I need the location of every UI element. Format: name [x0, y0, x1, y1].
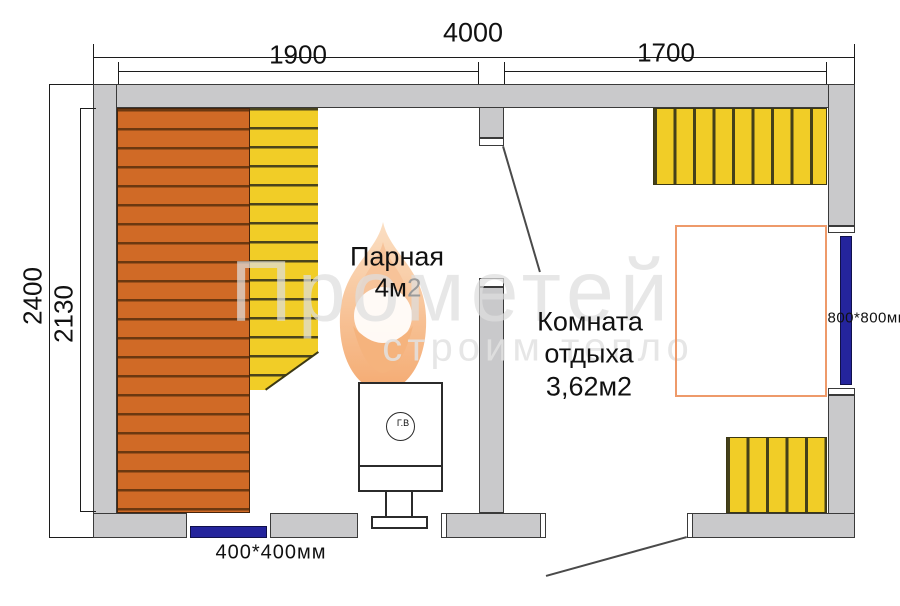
dimension-tick — [93, 44, 94, 84]
rest-room-area: 3,62м2 — [546, 372, 632, 403]
steam-room-area-value: 4м — [375, 273, 407, 303]
wall-end-cap — [479, 138, 504, 146]
dimension-tick — [80, 108, 96, 109]
wall-bottom-left — [93, 513, 187, 538]
dimension-tick — [49, 84, 93, 85]
rest-room-name-line1: Комната — [537, 307, 643, 338]
wall-end-cap — [540, 513, 546, 538]
dimension-label-1700: 1700 — [637, 38, 695, 69]
dimension-label-2400: 2400 — [18, 267, 49, 325]
stove-tank-label: Г.В — [397, 418, 409, 428]
dimension-tick — [49, 537, 93, 538]
steam-room-name: Парная — [350, 242, 444, 273]
steam-room-area: 4м2 — [375, 273, 422, 304]
dimension-line-2130 — [80, 108, 81, 512]
dimension-tick — [478, 62, 479, 84]
dimension-line-4000 — [93, 57, 855, 58]
dimension-label-1900: 1900 — [269, 40, 327, 71]
dimension-tick — [80, 511, 96, 512]
stove-band — [358, 465, 443, 492]
wall-bottom-right — [692, 513, 855, 538]
window-right-label: 800*800мм — [827, 310, 900, 327]
stove-base — [371, 516, 428, 529]
rest-room-name-line2: отдыха — [544, 339, 633, 370]
wall-end-cap — [828, 388, 855, 395]
steam-room-area-sup: 2 — [407, 273, 421, 303]
wall-end-cap — [828, 226, 855, 233]
wall-bottom-mid — [270, 513, 358, 538]
table-outline — [675, 225, 827, 397]
dimension-tick — [826, 62, 827, 84]
window-bottom-label: 400*400мм — [215, 542, 326, 565]
interior-wall-stub — [479, 107, 504, 138]
bench-bottom-right-yellow — [726, 437, 827, 513]
dimension-label-2130: 2130 — [49, 285, 80, 343]
wall-right-upper — [828, 84, 855, 226]
floor-plan-canvas: Прометей строим тепло Г.В — [0, 0, 900, 606]
wall-left — [93, 84, 117, 538]
dimension-tick — [854, 44, 855, 84]
stove-stem — [385, 490, 413, 518]
wall-bottom-center — [446, 513, 541, 538]
dimension-tick — [118, 62, 119, 84]
wall-top — [93, 84, 855, 108]
window-bottom — [190, 526, 267, 538]
dimension-line-1700 — [504, 71, 827, 72]
bench-top-right-yellow — [653, 108, 827, 185]
dimension-label-4000: 4000 — [443, 18, 503, 49]
dimension-line-1900 — [118, 71, 479, 72]
door-swing-entrance — [546, 537, 687, 577]
dimension-tick — [504, 62, 505, 84]
